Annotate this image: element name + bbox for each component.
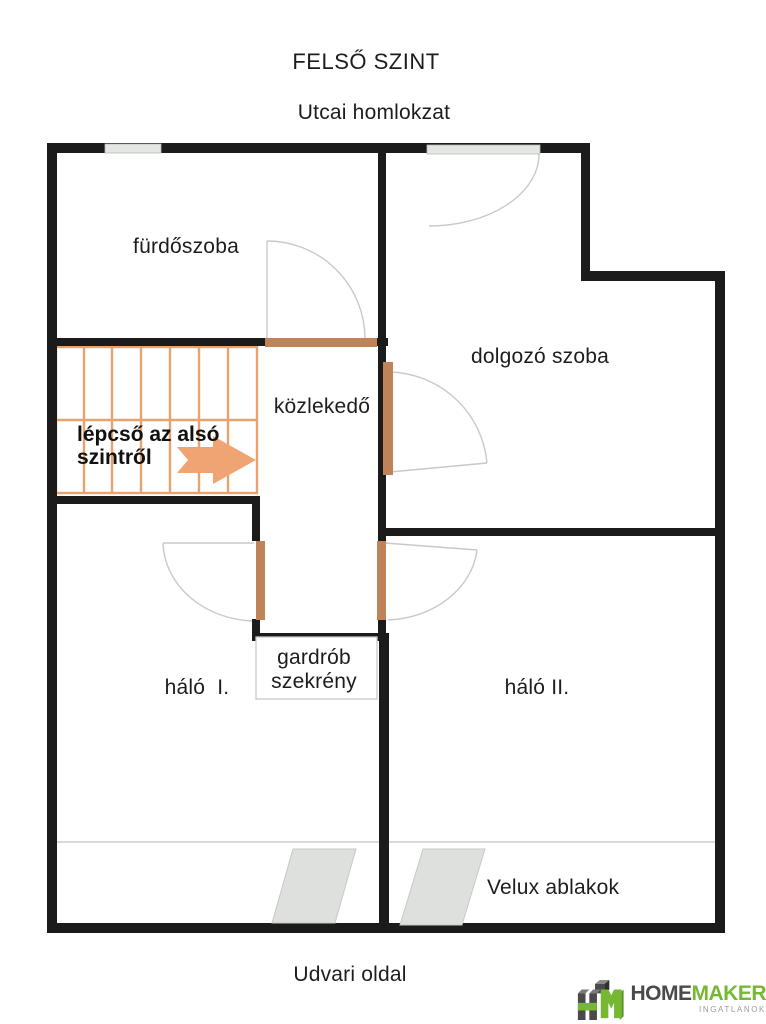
bathroom-door-sill [265,338,377,347]
room-label-bathroom: fürdőszoba [133,235,239,259]
courtyard-side-label: Udvari oldal [293,963,406,987]
room-label-bedroom2: háló II. [505,676,570,700]
logo-text-home: HOME [631,982,692,1005]
velux-window-1-icon [272,849,356,923]
logo-tagline: INGATLANOK [631,1006,766,1014]
wardrobe-label-line1: gardrób [277,646,351,669]
stairs-note: lépcső az alsószintről [77,423,219,469]
wall-right [715,271,725,933]
stairs-note-line2: szintről [77,446,152,469]
wall-notch-horizontal [581,271,725,281]
wall-left [47,143,57,933]
wardrobe-label: gardróbszekrény [271,646,357,694]
wall-bedroom1-bedroom2 [379,640,389,923]
wall-bottom [47,923,725,933]
study-door-arc-icon [389,372,487,472]
stairs-note-line1: lépcső az alsó [77,423,219,446]
wall-stairs-south [47,496,260,504]
velux-window-2-icon [400,849,485,925]
bedroom2-door-arc-icon [385,543,477,620]
room-label-study: dolgozó szoba [471,345,609,369]
bedroom2-door-jamb [377,541,386,620]
bathroom-door-arc-icon [267,241,365,339]
street-side-label: Utcai homlokzat [298,101,450,125]
wall-notch-vertical [581,143,590,281]
bathroom-window-icon [105,144,161,153]
homemaker-logo-wordmark: HOMEMAKER [631,983,766,1004]
velux-label: Velux ablakok [487,876,619,900]
homemaker-logo-icon [576,977,626,1024]
study-door-jamb [383,362,393,475]
homemaker-logo: HOMEMAKER INGATLANOK [576,977,766,1024]
floor-plan-page: FELSŐ SZINT Utcai homlokzat fürdőszoba d… [0,0,766,1024]
page-title: FELSŐ SZINT [292,49,439,75]
street-window-icon [427,145,540,154]
room-label-bedroom1: háló I. [165,676,230,700]
logo-text-maker: MAKER [692,982,766,1005]
bedroom1-door-jamb [256,541,265,620]
street-window-arc-icon [428,148,539,226]
wall-study-bedroom2 [379,528,720,536]
walls [47,143,725,933]
wall-bathroom-study [378,143,386,346]
wardrobe-label-line2: szekrény [271,670,357,693]
room-label-hallway: közlekedő [274,395,370,419]
floor-plan-drawing [0,0,766,1024]
bedroom1-door-arc-icon [163,543,254,621]
